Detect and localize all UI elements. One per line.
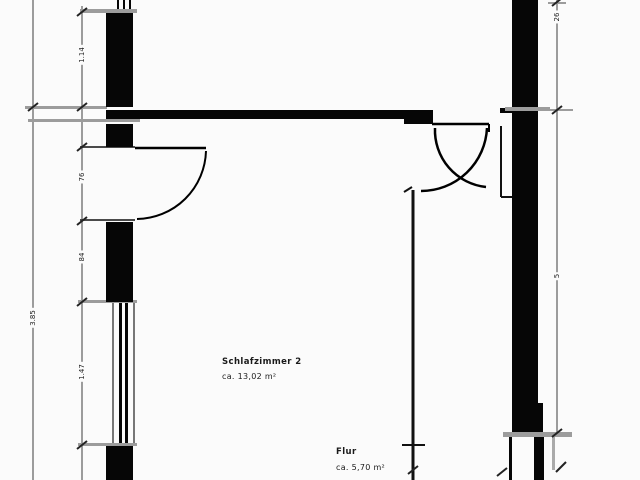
plan-linework-overlay (0, 0, 640, 480)
dimension-line-inner-left (81, 6, 83, 480)
dim-label-right-top: 26 (553, 11, 561, 24)
door-opening-edge-bottom (80, 219, 135, 221)
window-top-line-3 (129, 0, 131, 9)
window-left-glass-1 (119, 303, 122, 443)
dim-label-right-side: 5 (553, 272, 561, 280)
extension-line-top-a (25, 106, 107, 109)
window-right-bottom-line-1 (509, 437, 512, 480)
window-left-frame-inner (133, 303, 135, 443)
dimension-line-outer-left (32, 0, 34, 480)
room-area-schlafzimmer: ca. 13,02 m² (222, 372, 276, 381)
room-label-flur: Flur (336, 447, 357, 457)
door-left-swing-arc (137, 151, 206, 219)
wall-top-horizontal (106, 110, 432, 119)
window-top-line-1 (117, 0, 119, 9)
dim-label-left-door: 76 (78, 171, 86, 184)
floor-plan-canvas: Schlafzimmer 2 ca. 13,02 m² Flur ca. 5,7… (0, 0, 640, 480)
door-hall-swing-arc-1 (421, 128, 487, 191)
wall-left-lower (106, 446, 133, 480)
wall-left-pier (106, 222, 133, 302)
extension-line-right-top (548, 2, 566, 4)
window-top-line-2 (123, 0, 125, 9)
dim-label-left-window: 1.47 (78, 362, 86, 382)
dim-label-left-top: 1.14 (78, 45, 86, 65)
extension-line-top-b (28, 119, 140, 122)
wall-right-step (512, 403, 543, 432)
dim-label-left-pier: 84 (78, 251, 86, 264)
door-hall-swing-arc-2 (435, 128, 486, 187)
room-label-schlafzimmer: Schlafzimmer 2 (222, 357, 302, 367)
window-left-glass-2 (125, 303, 128, 443)
wall-right-upper (512, 0, 538, 108)
wall-left-upper (106, 13, 133, 107)
room-area-flur: ca. 5,70 m² (336, 463, 385, 472)
partition-top-hook (404, 187, 412, 192)
wall-left-above-door (106, 124, 133, 147)
dim-label-outer-left: 3.85 (29, 308, 37, 328)
window-right-bottom-line-2 (534, 437, 544, 480)
dimension-line-right (556, 0, 558, 437)
window-left-frame-outer (112, 303, 114, 443)
door-threshold-bar (404, 119, 433, 124)
window-right-bottom-line-3 (552, 437, 555, 470)
wall-right-main (512, 111, 538, 403)
